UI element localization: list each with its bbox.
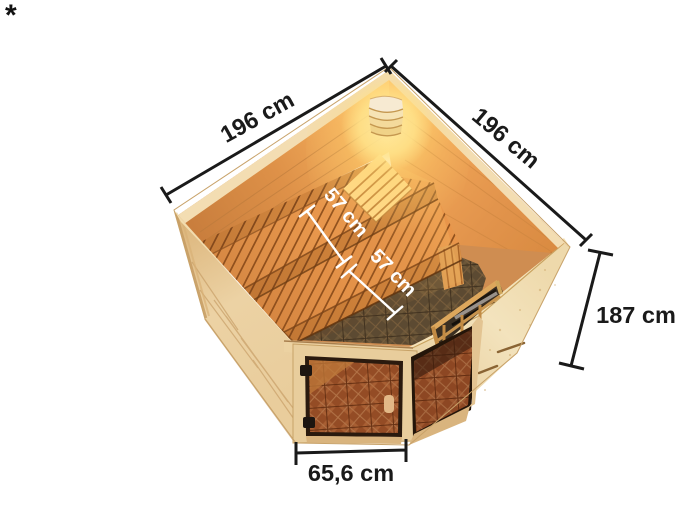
- svg-text:187 cm: 187 cm: [596, 302, 676, 328]
- svg-text:*: *: [5, 0, 17, 32]
- svg-text:196 cm: 196 cm: [216, 86, 298, 147]
- svg-text:65,6 cm: 65,6 cm: [308, 460, 394, 486]
